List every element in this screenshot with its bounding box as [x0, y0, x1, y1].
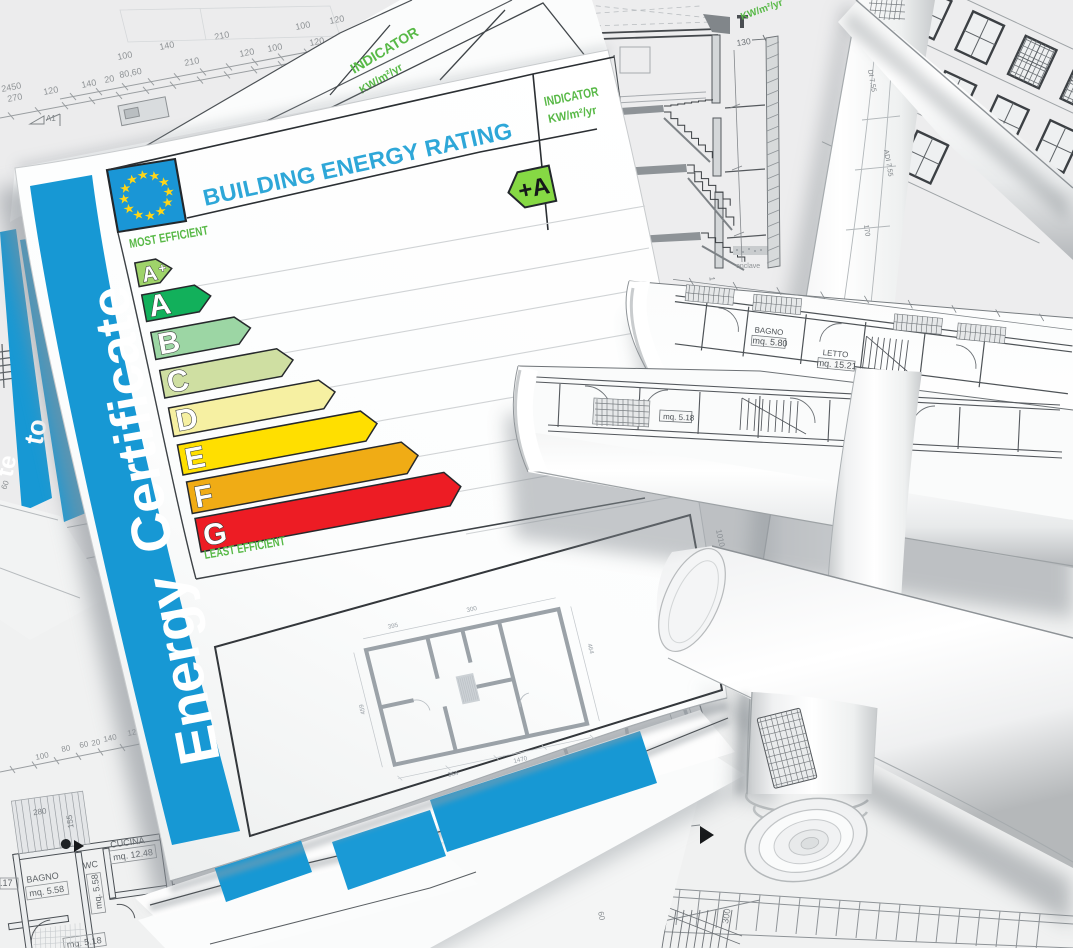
svg-text:170: 170 [675, 0, 716, 281]
svg-text:mq. 5.18: mq. 5.18 [663, 412, 695, 423]
